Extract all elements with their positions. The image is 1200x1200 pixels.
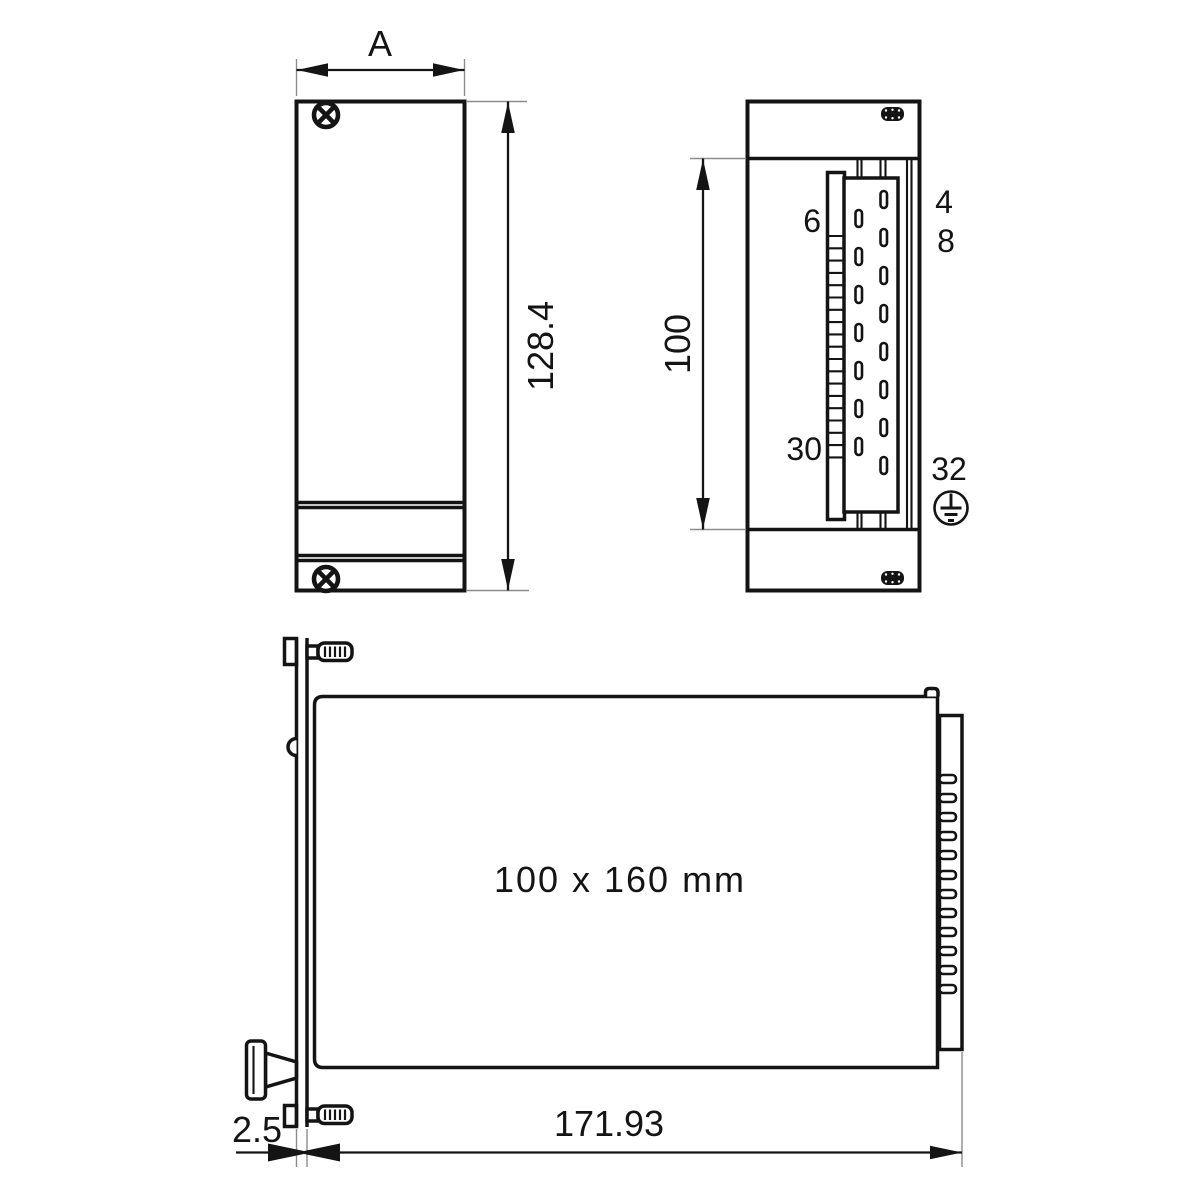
- arrowhead-right-icon: [433, 63, 464, 77]
- panel-groove-lines: [298, 503, 463, 561]
- front-view: A 128.4: [297, 23, 562, 591]
- arrowhead-down-icon: [696, 498, 710, 529]
- connector-side: [940, 716, 963, 1050]
- connector-body: [844, 178, 898, 512]
- handle-neck: [266, 1053, 297, 1087]
- mounting-screw-icon: [307, 1106, 352, 1124]
- technical-drawing-page: A 128.4 6 4 8: [0, 0, 1200, 1200]
- dimension-width-a: A: [297, 23, 465, 96]
- screw-slot-icon: [881, 107, 904, 121]
- pin-label-4: 4: [935, 184, 953, 220]
- technical-drawing: A 128.4 6 4 8: [0, 0, 1200, 1200]
- connector-side-body: [940, 716, 963, 1050]
- phillips-screw-icon: [314, 567, 338, 591]
- dim-label-height-front: 128.4: [520, 301, 561, 391]
- dim-label-depth: 171.93: [554, 1103, 664, 1144]
- ground-symbol-icon: [935, 492, 968, 525]
- front-panel-outline: [297, 102, 465, 591]
- board-size-label: 100 x 160 mm: [494, 859, 746, 900]
- pin-label-8: 8: [937, 223, 955, 259]
- dim-label-height-side: 100: [657, 314, 698, 374]
- dim-label-width-a: A: [368, 23, 392, 64]
- handle-grip: [247, 1041, 266, 1099]
- pcb-corner-tab: [926, 689, 939, 697]
- pin-label-30: 30: [786, 431, 822, 467]
- mounting-screw-icon: [307, 643, 352, 661]
- arrowhead-right-icon: [930, 1146, 962, 1160]
- arrowhead-cross-left-icon: [297, 1144, 340, 1162]
- arrowhead-up-icon: [501, 102, 515, 133]
- dimension-height-100: 100: [657, 159, 745, 530]
- panel-pivot-bump: [288, 739, 297, 756]
- dimension-height-128-4: 128.4: [466, 102, 561, 591]
- din-connector: [828, 159, 899, 530]
- phillips-screw-icon: [314, 103, 338, 127]
- panel-retainer-top: [285, 639, 297, 665]
- pin-label-6: 6: [803, 203, 821, 239]
- arrowhead-up-icon: [696, 159, 710, 190]
- dim-label-panel-thickness: 2.5: [232, 1109, 282, 1150]
- panel-strip-lines: [297, 638, 308, 1127]
- extension-lines: [690, 159, 745, 530]
- extractor-handle: [247, 1041, 297, 1099]
- pin-label-32: 32: [931, 451, 967, 487]
- pcb-edge-lines: [907, 159, 912, 530]
- side-view: 100 x 160 mm 171.93 2.5: [232, 638, 962, 1167]
- arrowhead-left-icon: [297, 63, 328, 77]
- extension-lines: [297, 59, 465, 96]
- arrowhead-down-icon: [501, 559, 515, 590]
- screw-slot-icon: [881, 571, 904, 585]
- rear-view: 6 4 8 30 32 100: [657, 102, 968, 591]
- panel-retainer-bottom: [285, 1106, 297, 1127]
